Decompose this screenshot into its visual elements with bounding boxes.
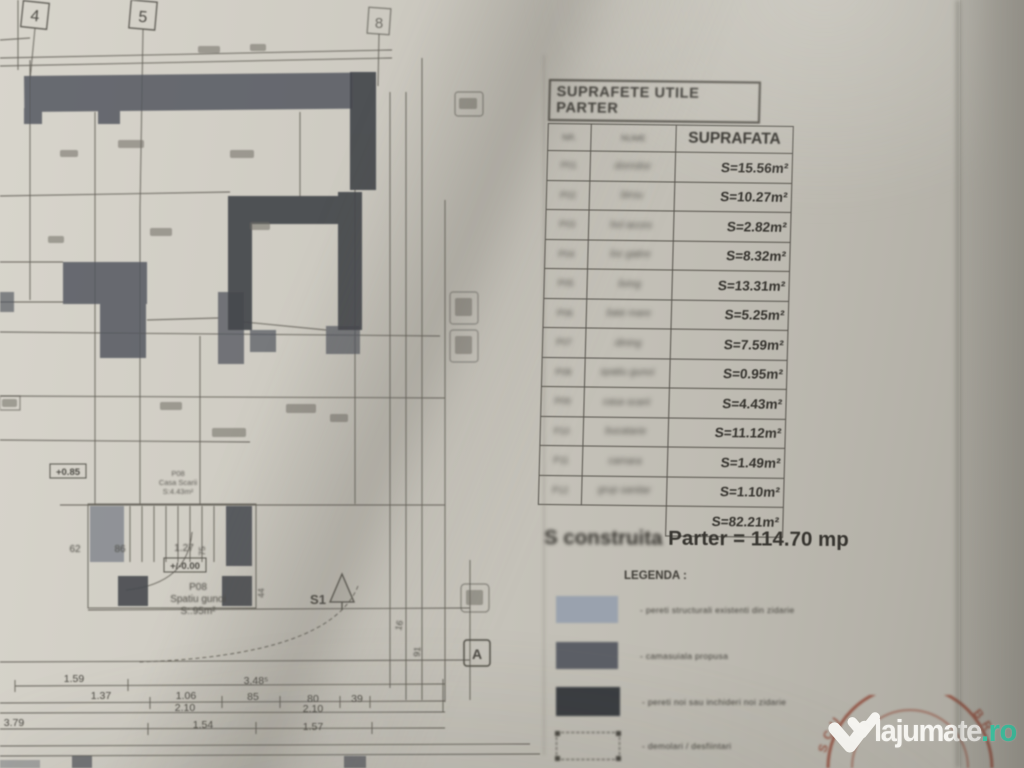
- summary-value: Parter = 114.70 mp: [662, 527, 848, 551]
- cell-nr: P09: [541, 386, 585, 416]
- cell-area: S=15.56m²: [674, 152, 794, 183]
- paper-crease: [956, 0, 960, 768]
- lajumate-logo-icon: [828, 708, 880, 762]
- svg-text:44: 44: [256, 588, 266, 598]
- cell-name: casa scarii: [584, 387, 670, 418]
- cell-area: S=2.82m²: [672, 211, 792, 242]
- cell-name: baie mare: [586, 298, 672, 329]
- photographed-floor-plan: 4 5 8 A +0.85 +/-0.00 P08 Casa Scarii S:…: [0, 0, 1024, 768]
- legend-label: - demolari / desfiintari: [642, 741, 731, 751]
- grid-marker-8: 8: [375, 15, 383, 32]
- svg-text:16: 16: [393, 619, 405, 631]
- cell-name: bucatarie: [583, 416, 669, 447]
- legend-label: - pereti structurali existenti din zidar…: [640, 605, 794, 615]
- svg-text:S:4.43m²: S:4.43m²: [163, 487, 194, 496]
- cell-nr: P07: [542, 327, 586, 357]
- areas-table: NR. NUME SUPRAFATA P01dormitorS=15.56m² …: [537, 123, 794, 537]
- cell-nr: P01: [547, 150, 591, 180]
- svg-text:1.59: 1.59: [64, 673, 85, 685]
- legend-title: LEGENDA :: [624, 570, 886, 582]
- areas-table-title: SUPRAFETE UTILE PARTER: [548, 79, 761, 124]
- table-row: P10bucatarieS=11.12m²: [540, 416, 786, 448]
- areas-table-section: SUPRAFETE UTILE PARTER NR. NUME SUPRAFAT…: [537, 79, 795, 537]
- cell-area: S=4.43m²: [668, 388, 788, 419]
- section-marker-s1: S1: [310, 574, 354, 610]
- svg-text:85: 85: [247, 691, 259, 703]
- svg-text:39: 39: [351, 693, 363, 705]
- svg-text:1.06: 1.06: [176, 690, 197, 702]
- legend-label: - camasuiala propusa: [640, 651, 728, 661]
- svg-text:1.27: 1.27: [174, 543, 194, 554]
- table-row: P02birouS=10.27m²: [546, 180, 792, 212]
- cell-name: camara: [582, 446, 668, 477]
- cell-nr: P03: [545, 209, 589, 239]
- svg-text:2.10: 2.10: [303, 703, 324, 715]
- areas-header-row: NR. NUME SUPRAFATA: [548, 123, 794, 153]
- cell-area: S=10.27m²: [673, 182, 793, 213]
- table-row: P01dormitorS=15.56m²: [547, 150, 793, 182]
- svg-text:1.54: 1.54: [193, 719, 214, 731]
- legend-swatch-jacketing: [556, 642, 618, 669]
- cell-nr: P11: [539, 445, 583, 475]
- table-row: P11camaraS=1.49m²: [539, 445, 785, 477]
- svg-text:Spatiu gunoi: Spatiu gunoi: [170, 594, 226, 605]
- svg-text:62: 62: [69, 544, 81, 555]
- watermark-brand: lajumate: [874, 713, 981, 748]
- cell-name: hol acces: [588, 210, 674, 241]
- plan-lines: [0, 0, 540, 756]
- table-row: P06baie mareS=5.25m²: [543, 298, 789, 330]
- cell-name: loc gatire: [588, 239, 674, 270]
- table-row: P08spatiu gunoiS=0.95m²: [541, 357, 787, 389]
- legend-swatch-demolition: [556, 732, 620, 760]
- legend-item: - pereti structurali existenti din zidar…: [556, 596, 794, 623]
- table-row: P12grup sanitarS=1.10m²: [538, 475, 784, 507]
- legend-swatch-existing-wall: [556, 596, 618, 623]
- cell-name: dining: [585, 328, 671, 359]
- cell-area: S=11.12m²: [667, 417, 787, 448]
- cell-name: grup sanitar: [581, 475, 667, 506]
- cell-nr: P02: [546, 180, 590, 210]
- legend-swatch-new-wall: [556, 687, 620, 716]
- axis-marker-a: A: [472, 646, 482, 662]
- col-header-area: SUPRAFATA: [676, 125, 794, 153]
- new-wall-portal: [228, 72, 376, 330]
- cell-area: S=1.10m²: [665, 476, 785, 507]
- svg-text:86: 86: [114, 544, 126, 555]
- cell-area: S=8.32m²: [671, 241, 791, 272]
- cell-name: spatiu gunoi: [584, 357, 670, 388]
- legend-label: - pereti noi sau inchideri noi zidarie: [642, 697, 786, 707]
- cell-area: S=0.95m²: [668, 359, 788, 390]
- cell-name: dormitor: [590, 151, 676, 182]
- legend-section: LEGENDA : - pereti structurali existenti…: [556, 570, 886, 582]
- cell-nr: P05: [544, 268, 588, 298]
- paper-edge-shading: [960, 0, 1024, 768]
- svg-text:Casa Scarii: Casa Scarii: [159, 478, 198, 487]
- watermark: lajumate.ro: [828, 700, 1024, 768]
- col-header-nr: NR.: [548, 123, 592, 151]
- cell-nr: P08: [541, 357, 585, 387]
- legend-item: - camasuiala propusa: [556, 642, 728, 669]
- svg-text:3.48⁵: 3.48⁵: [244, 675, 269, 687]
- legend-item: - demolari / desfiintari: [556, 732, 731, 760]
- table-row: P07diningS=7.59m²: [542, 327, 788, 359]
- watermark-tld: .ro: [981, 713, 1017, 748]
- summary-prefix: S construita: [544, 526, 663, 550]
- svg-text:2.10: 2.10: [175, 702, 196, 714]
- table-row: P03hol accesS=2.82m²: [545, 209, 791, 241]
- legend-item: - pereti noi sau inchideri noi zidarie: [556, 687, 786, 716]
- built-area-summary: S construita Parter = 114.70 mp: [544, 526, 849, 552]
- cell-nr: P04: [545, 239, 589, 269]
- table-row: P09casa scariiS=4.43m²: [541, 386, 787, 418]
- level-upper: +0.85: [56, 467, 81, 478]
- svg-text:S:.95m²: S:.95m²: [180, 606, 216, 617]
- svg-text:1.37: 1.37: [91, 690, 112, 702]
- grid-marker-5: 5: [138, 9, 148, 27]
- cell-nr: P10: [540, 416, 584, 446]
- svg-text:P08: P08: [171, 469, 184, 478]
- cell-name: birou: [589, 181, 675, 212]
- table-row: P05livingS=13.31m²: [544, 268, 790, 300]
- cell-area: S=13.31m²: [671, 270, 791, 301]
- cell-area: S=7.59m²: [669, 329, 789, 360]
- grid-marker-4: 4: [30, 8, 41, 26]
- col-header-name: NUME: [591, 124, 677, 152]
- watermark-text: lajumate.ro: [874, 713, 1017, 749]
- svg-text:P08: P08: [189, 582, 207, 593]
- level-zero: +/-0.00: [170, 561, 200, 572]
- room-label-spatiu-gunoi: P08 Spatiu gunoi S:.95m²: [170, 582, 226, 617]
- cell-area: S=5.25m²: [670, 300, 790, 331]
- svg-text:S1: S1: [310, 592, 326, 607]
- room-label-casa-scarii: P08 Casa Scarii S:4.43m²: [159, 469, 198, 496]
- cell-nr: P06: [543, 298, 587, 328]
- svg-text:75: 75: [197, 546, 207, 556]
- table-row: P04loc gatireS=8.32m²: [545, 239, 791, 271]
- cell-name: living: [587, 269, 673, 300]
- svg-text:1.57: 1.57: [303, 721, 324, 733]
- cell-nr: P12: [538, 475, 582, 505]
- svg-text:91: 91: [412, 646, 423, 657]
- svg-text:3.79: 3.79: [4, 717, 25, 729]
- floor-plan-drawing: 4 5 8 A +0.85 +/-0.00 P08 Casa Scarii S:…: [0, 0, 560, 768]
- cell-area: S=1.49m²: [666, 447, 786, 478]
